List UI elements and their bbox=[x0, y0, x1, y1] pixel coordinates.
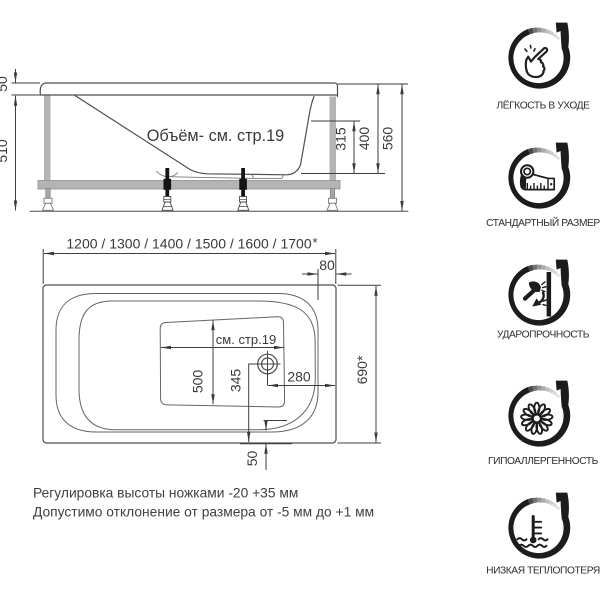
svg-text:345: 345 bbox=[228, 369, 244, 393]
svg-text:315: 315 bbox=[333, 127, 349, 151]
svg-text:Допустимо отклонение от размер: Допустимо отклонение от размера от -5 мм… bbox=[33, 505, 374, 520]
svg-text:50: 50 bbox=[0, 76, 10, 92]
svg-text:560: 560 bbox=[380, 127, 396, 151]
svg-text:НИЗКАЯ ТЕПЛОПОТЕРЯ: НИЗКАЯ ТЕПЛОПОТЕРЯ bbox=[486, 566, 600, 577]
svg-text:500: 500 bbox=[190, 370, 206, 394]
svg-text:ЛЁГКОСТЬ В УХОДЕ: ЛЁГКОСТЬ В УХОДЕ bbox=[496, 100, 590, 112]
svg-text:см. стр.19: см. стр.19 bbox=[216, 332, 276, 347]
svg-text:СТАНДАРТНЫЙ РАЗМЕР: СТАНДАРТНЫЙ РАЗМЕР bbox=[486, 216, 600, 229]
svg-text:Объём- см. стр.19: Объём- см. стр.19 bbox=[147, 127, 284, 145]
svg-text:510: 510 bbox=[0, 139, 10, 163]
svg-text:80: 80 bbox=[319, 257, 335, 273]
svg-text:280: 280 bbox=[287, 369, 311, 385]
svg-text:400: 400 bbox=[356, 127, 372, 151]
svg-text:ГИПОАЛЛЕРГЕННОСТЬ: ГИПОАЛЛЕРГЕННОСТЬ bbox=[488, 456, 599, 467]
svg-text:УДАРОПРОЧНОСТЬ: УДАРОПРОЧНОСТЬ bbox=[497, 330, 590, 341]
svg-text:50: 50 bbox=[244, 451, 260, 467]
svg-text:*: * bbox=[313, 235, 318, 250]
svg-text:690*: 690* bbox=[354, 355, 370, 384]
svg-text:Регулировка высоты ножками -20: Регулировка высоты ножками -20 +35 мм bbox=[33, 486, 298, 501]
svg-text:1200 / 1300 / 1400 / 1500 / 16: 1200 / 1300 / 1400 / 1500 / 1600 / 1700 bbox=[66, 236, 311, 252]
